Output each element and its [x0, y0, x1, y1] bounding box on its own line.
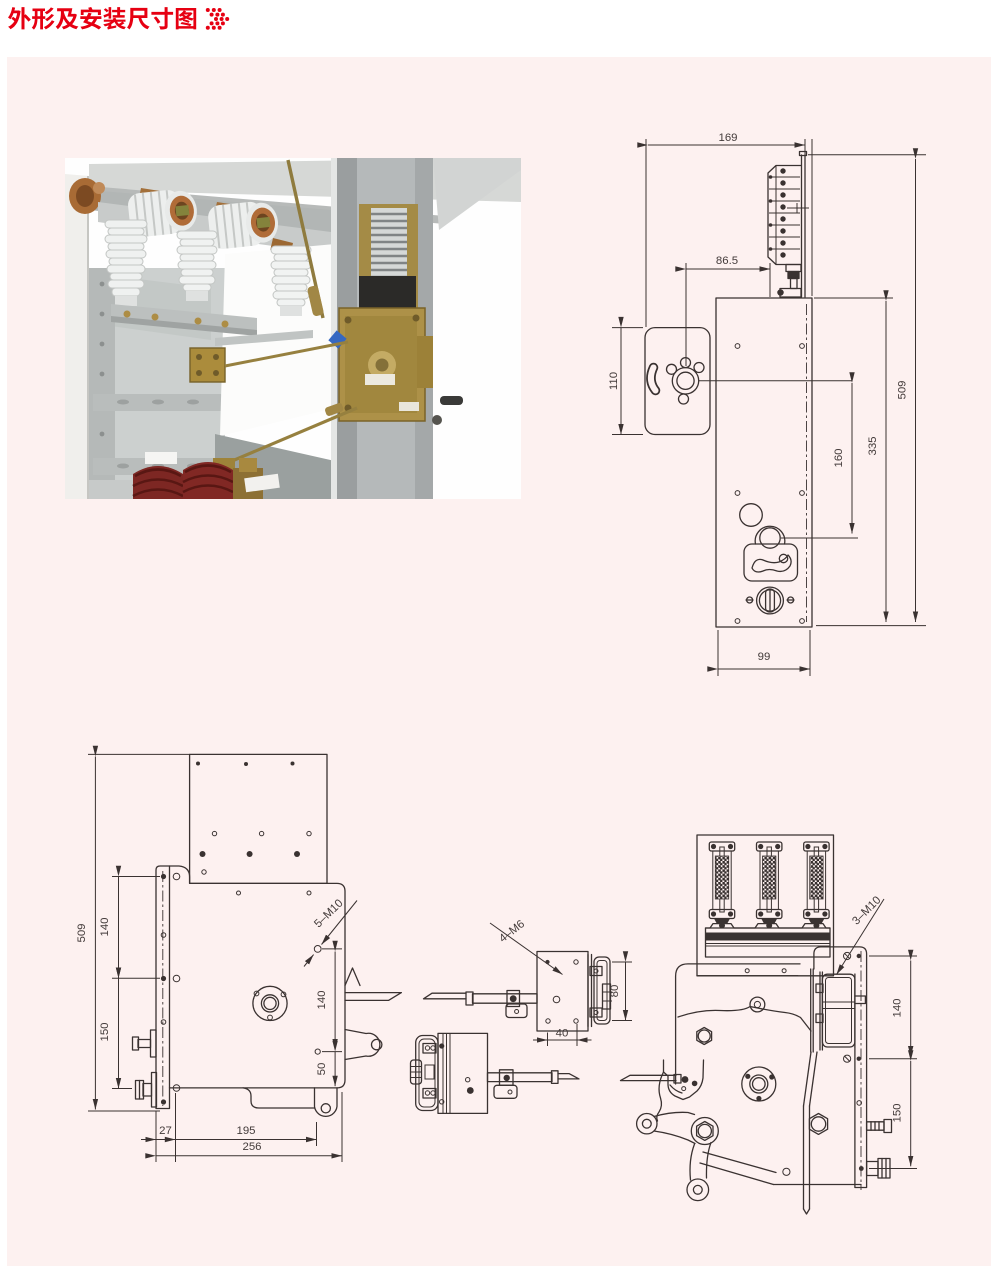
svg-text:50: 50	[316, 1063, 328, 1076]
svg-text:169: 169	[718, 132, 737, 144]
svg-text:140: 140	[892, 998, 904, 1017]
svg-text:99: 99	[758, 651, 771, 663]
svg-text:256: 256	[242, 1141, 261, 1153]
svg-text:195: 195	[236, 1125, 255, 1137]
svg-text:509: 509	[897, 380, 909, 399]
svg-text:140: 140	[99, 917, 111, 936]
svg-text:150: 150	[892, 1103, 904, 1122]
svg-text:27: 27	[159, 1125, 172, 1137]
svg-text:86.5: 86.5	[716, 255, 738, 267]
svg-text:150: 150	[99, 1022, 111, 1041]
svg-text:140: 140	[316, 990, 328, 1009]
svg-text:160: 160	[833, 448, 845, 467]
svg-text:335: 335	[867, 436, 879, 455]
svg-text:40: 40	[556, 1028, 569, 1040]
svg-text:509: 509	[76, 923, 88, 942]
svg-text:110: 110	[608, 372, 620, 390]
svg-text:80: 80	[609, 985, 621, 998]
